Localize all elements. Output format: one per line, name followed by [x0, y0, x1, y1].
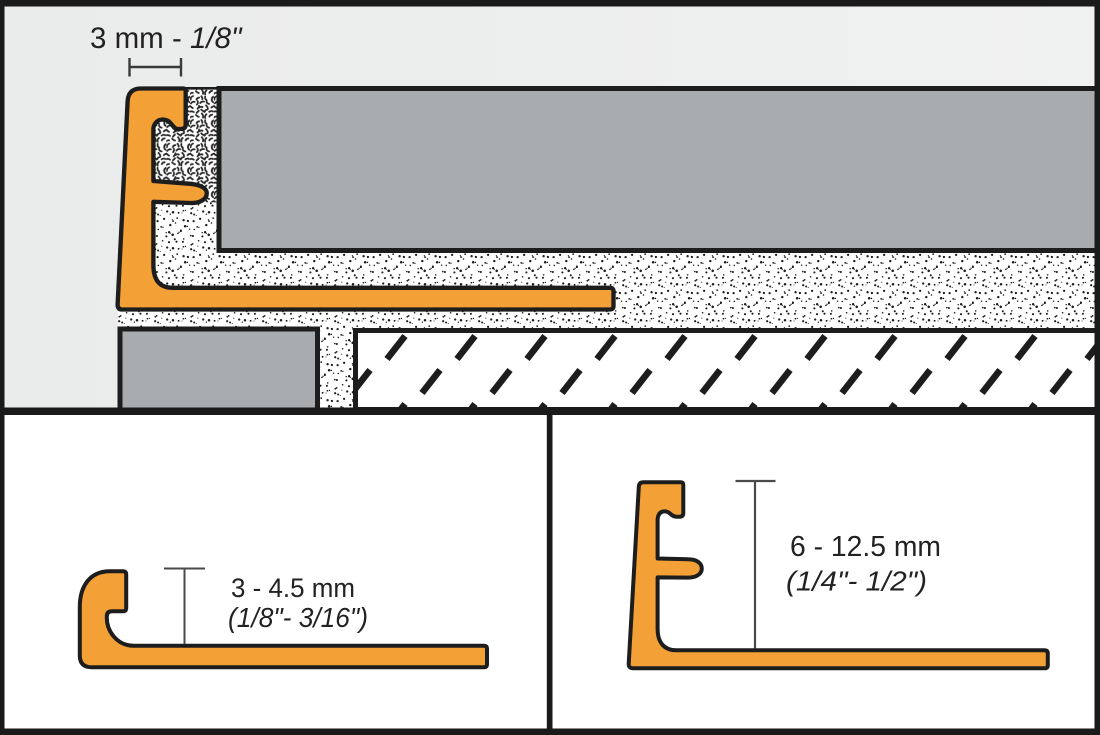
svg-text:(1/4"- 1/2"): (1/4"- 1/2")	[786, 566, 927, 597]
svg-text:(1/8"- 3/16"): (1/8"- 3/16")	[228, 602, 368, 633]
svg-text:3 - 4.5 mm: 3 - 4.5 mm	[231, 573, 355, 603]
svg-text:6 - 12.5 mm: 6 - 12.5 mm	[790, 531, 941, 563]
svg-text:3 mm - 1/8": 3 mm - 1/8"	[90, 22, 243, 55]
